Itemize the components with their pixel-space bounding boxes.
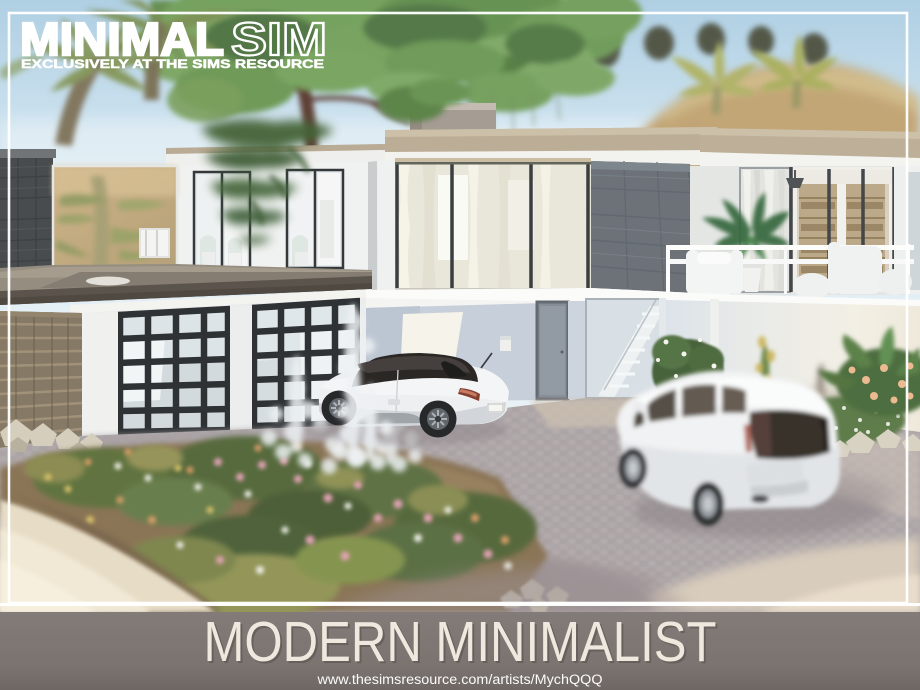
svg-text:EXCLUSIVELY AT THE SIMS RESOUR: EXCLUSIVELY AT THE SIMS RESOURCE — [21, 57, 324, 71]
svg-text:www.thesimsresource.com/artist: www.thesimsresource.com/artists/MychQQQ — [316, 672, 602, 687]
svg-text:MODERN MINIMALIST: MODERN MINIMALIST — [204, 610, 717, 674]
